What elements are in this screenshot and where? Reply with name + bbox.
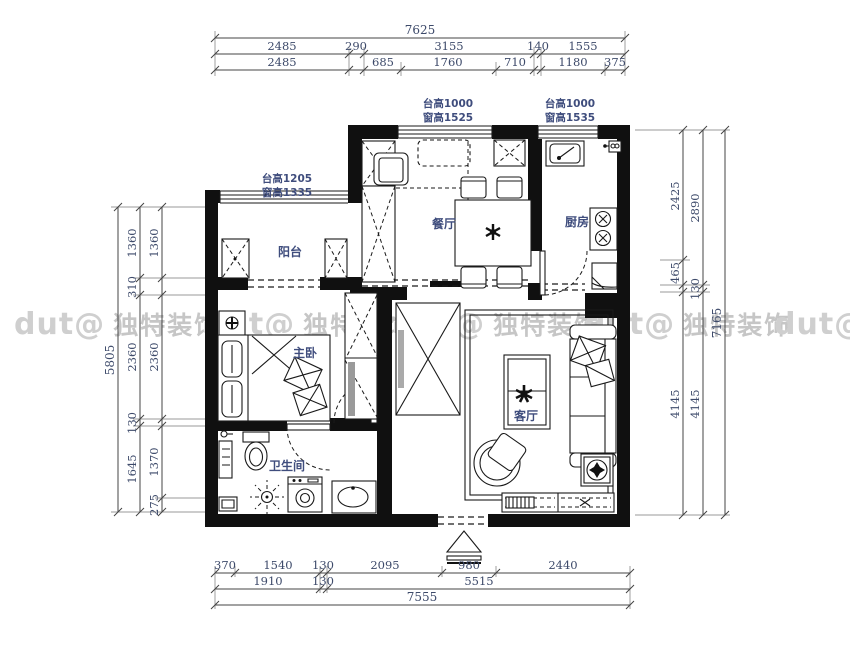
shower-light-icon — [250, 480, 284, 514]
label-living: 客厅 — [513, 408, 538, 423]
annotation-kitchen-window: 台高1000 窗高1535 — [545, 97, 595, 124]
nightstand — [219, 311, 245, 336]
svg-text:130: 130 — [312, 574, 334, 588]
window-kitchen — [538, 126, 598, 138]
svg-text:4145: 4145 — [668, 389, 682, 418]
annotation-dining-window: 台高1000 窗高1525 — [423, 97, 473, 124]
svg-text:1180: 1180 — [558, 55, 587, 69]
svg-text:685: 685 — [372, 55, 394, 69]
washing-machine — [288, 477, 322, 512]
kitchen-door — [540, 251, 587, 295]
svg-text:7625: 7625 — [405, 23, 436, 37]
svg-text:5805: 5805 — [103, 345, 117, 376]
svg-text:1910: 1910 — [253, 574, 282, 588]
label-balcony: 阳台 — [278, 244, 302, 259]
floorplan-svg: dut@独特装饰 dut@独特装饰 dut@独特装饰 dut@独特装饰 dut@… — [0, 0, 850, 655]
lounge-chair — [474, 432, 527, 486]
svg-text:2360: 2360 — [147, 342, 161, 371]
svg-text:290: 290 — [345, 39, 367, 53]
svg-text:130: 130 — [312, 558, 334, 572]
toilet — [243, 432, 269, 470]
dimension-chain-top: 7625 2485 290 3155 140 1555 2485 685 176… — [211, 23, 629, 76]
balcony-cabinet-left — [222, 239, 249, 278]
label-kitchen: 厨房 — [565, 214, 589, 229]
svg-text:4145: 4145 — [688, 389, 702, 418]
dining-armchair — [374, 153, 408, 185]
svg-text:130: 130 — [688, 278, 702, 300]
svg-text:1555: 1555 — [568, 39, 597, 53]
side-speaker-table — [581, 454, 613, 486]
gas-meter-icon — [603, 141, 621, 152]
svg-text:310: 310 — [125, 276, 139, 298]
floorplan-canvas: dut@独特装饰 dut@独特装饰 dut@独特装饰 dut@独特装饰 dut@… — [0, 0, 850, 655]
svg-text:140: 140 — [527, 39, 549, 53]
svg-text:2485: 2485 — [267, 39, 296, 53]
label-master-bedroom: 主卧 — [293, 345, 317, 360]
svg-text:窗高1335: 窗高1335 — [262, 186, 312, 199]
svg-text:465: 465 — [668, 262, 682, 284]
sofa — [570, 325, 616, 467]
svg-text:2890: 2890 — [688, 193, 702, 222]
dimension-chain-bottom: 370 1540 130 2095 980 2440 1910 130 5515… — [211, 558, 634, 609]
svg-text:1760: 1760 — [433, 55, 462, 69]
svg-text:1360: 1360 — [125, 228, 139, 257]
svg-text:窗高1525: 窗高1525 — [423, 111, 473, 124]
dining-table-set — [455, 177, 531, 288]
kitchen-sink — [546, 141, 584, 166]
svg-text:275: 275 — [147, 494, 161, 516]
svg-text:窗高1535: 窗高1535 — [545, 111, 595, 124]
label-dining: 餐厅 — [432, 216, 456, 231]
svg-text:台高1205: 台高1205 — [262, 172, 312, 185]
svg-text:台高1000: 台高1000 — [545, 97, 595, 110]
window-dining — [398, 126, 492, 138]
svg-text:2485: 2485 — [267, 55, 296, 69]
svg-text:2440: 2440 — [548, 558, 577, 572]
svg-text:980: 980 — [458, 558, 480, 572]
label-bathroom: 卫生间 — [269, 458, 305, 473]
bathroom-corner-box — [219, 497, 237, 511]
kitchen-corner-unit — [592, 263, 617, 289]
towel-rail — [219, 431, 233, 478]
tv-cabinet — [502, 493, 614, 512]
hall-cabinet — [396, 303, 460, 415]
svg-text:dut@独特装饰: dut@独特装饰 — [774, 307, 850, 342]
svg-text:3155: 3155 — [434, 39, 463, 53]
svg-text:1370: 1370 — [147, 447, 161, 476]
svg-text:710: 710 — [504, 55, 526, 69]
entry-opening — [438, 517, 488, 524]
watermark-logo: dut@ — [14, 307, 105, 342]
svg-text:2360: 2360 — [125, 342, 139, 371]
svg-text:370: 370 — [214, 558, 236, 572]
svg-text:7165: 7165 — [710, 308, 724, 339]
svg-text:7555: 7555 — [407, 590, 438, 604]
annotation-balcony-window: 台高1205 窗高1335 — [262, 172, 312, 199]
dimension-chain-left: 5805 1360 310 2360 130 1645 1360 2360 13… — [103, 203, 205, 516]
svg-text:2095: 2095 — [370, 558, 399, 572]
svg-text:5515: 5515 — [464, 574, 493, 588]
svg-text:1645: 1645 — [125, 454, 139, 483]
balcony-slider-opening — [248, 280, 320, 287]
svg-text:375: 375 — [604, 55, 626, 69]
balcony-cabinet-right — [325, 239, 347, 278]
wash-basin — [332, 481, 376, 513]
svg-text:1540: 1540 — [263, 558, 292, 572]
svg-text:130: 130 — [125, 412, 139, 434]
svg-text:2425: 2425 — [668, 181, 682, 210]
kitchen-stove — [590, 208, 617, 250]
svg-text:1360: 1360 — [147, 228, 161, 257]
bedroom-wardrobe — [345, 293, 377, 419]
svg-text:台高1000: 台高1000 — [423, 97, 473, 110]
